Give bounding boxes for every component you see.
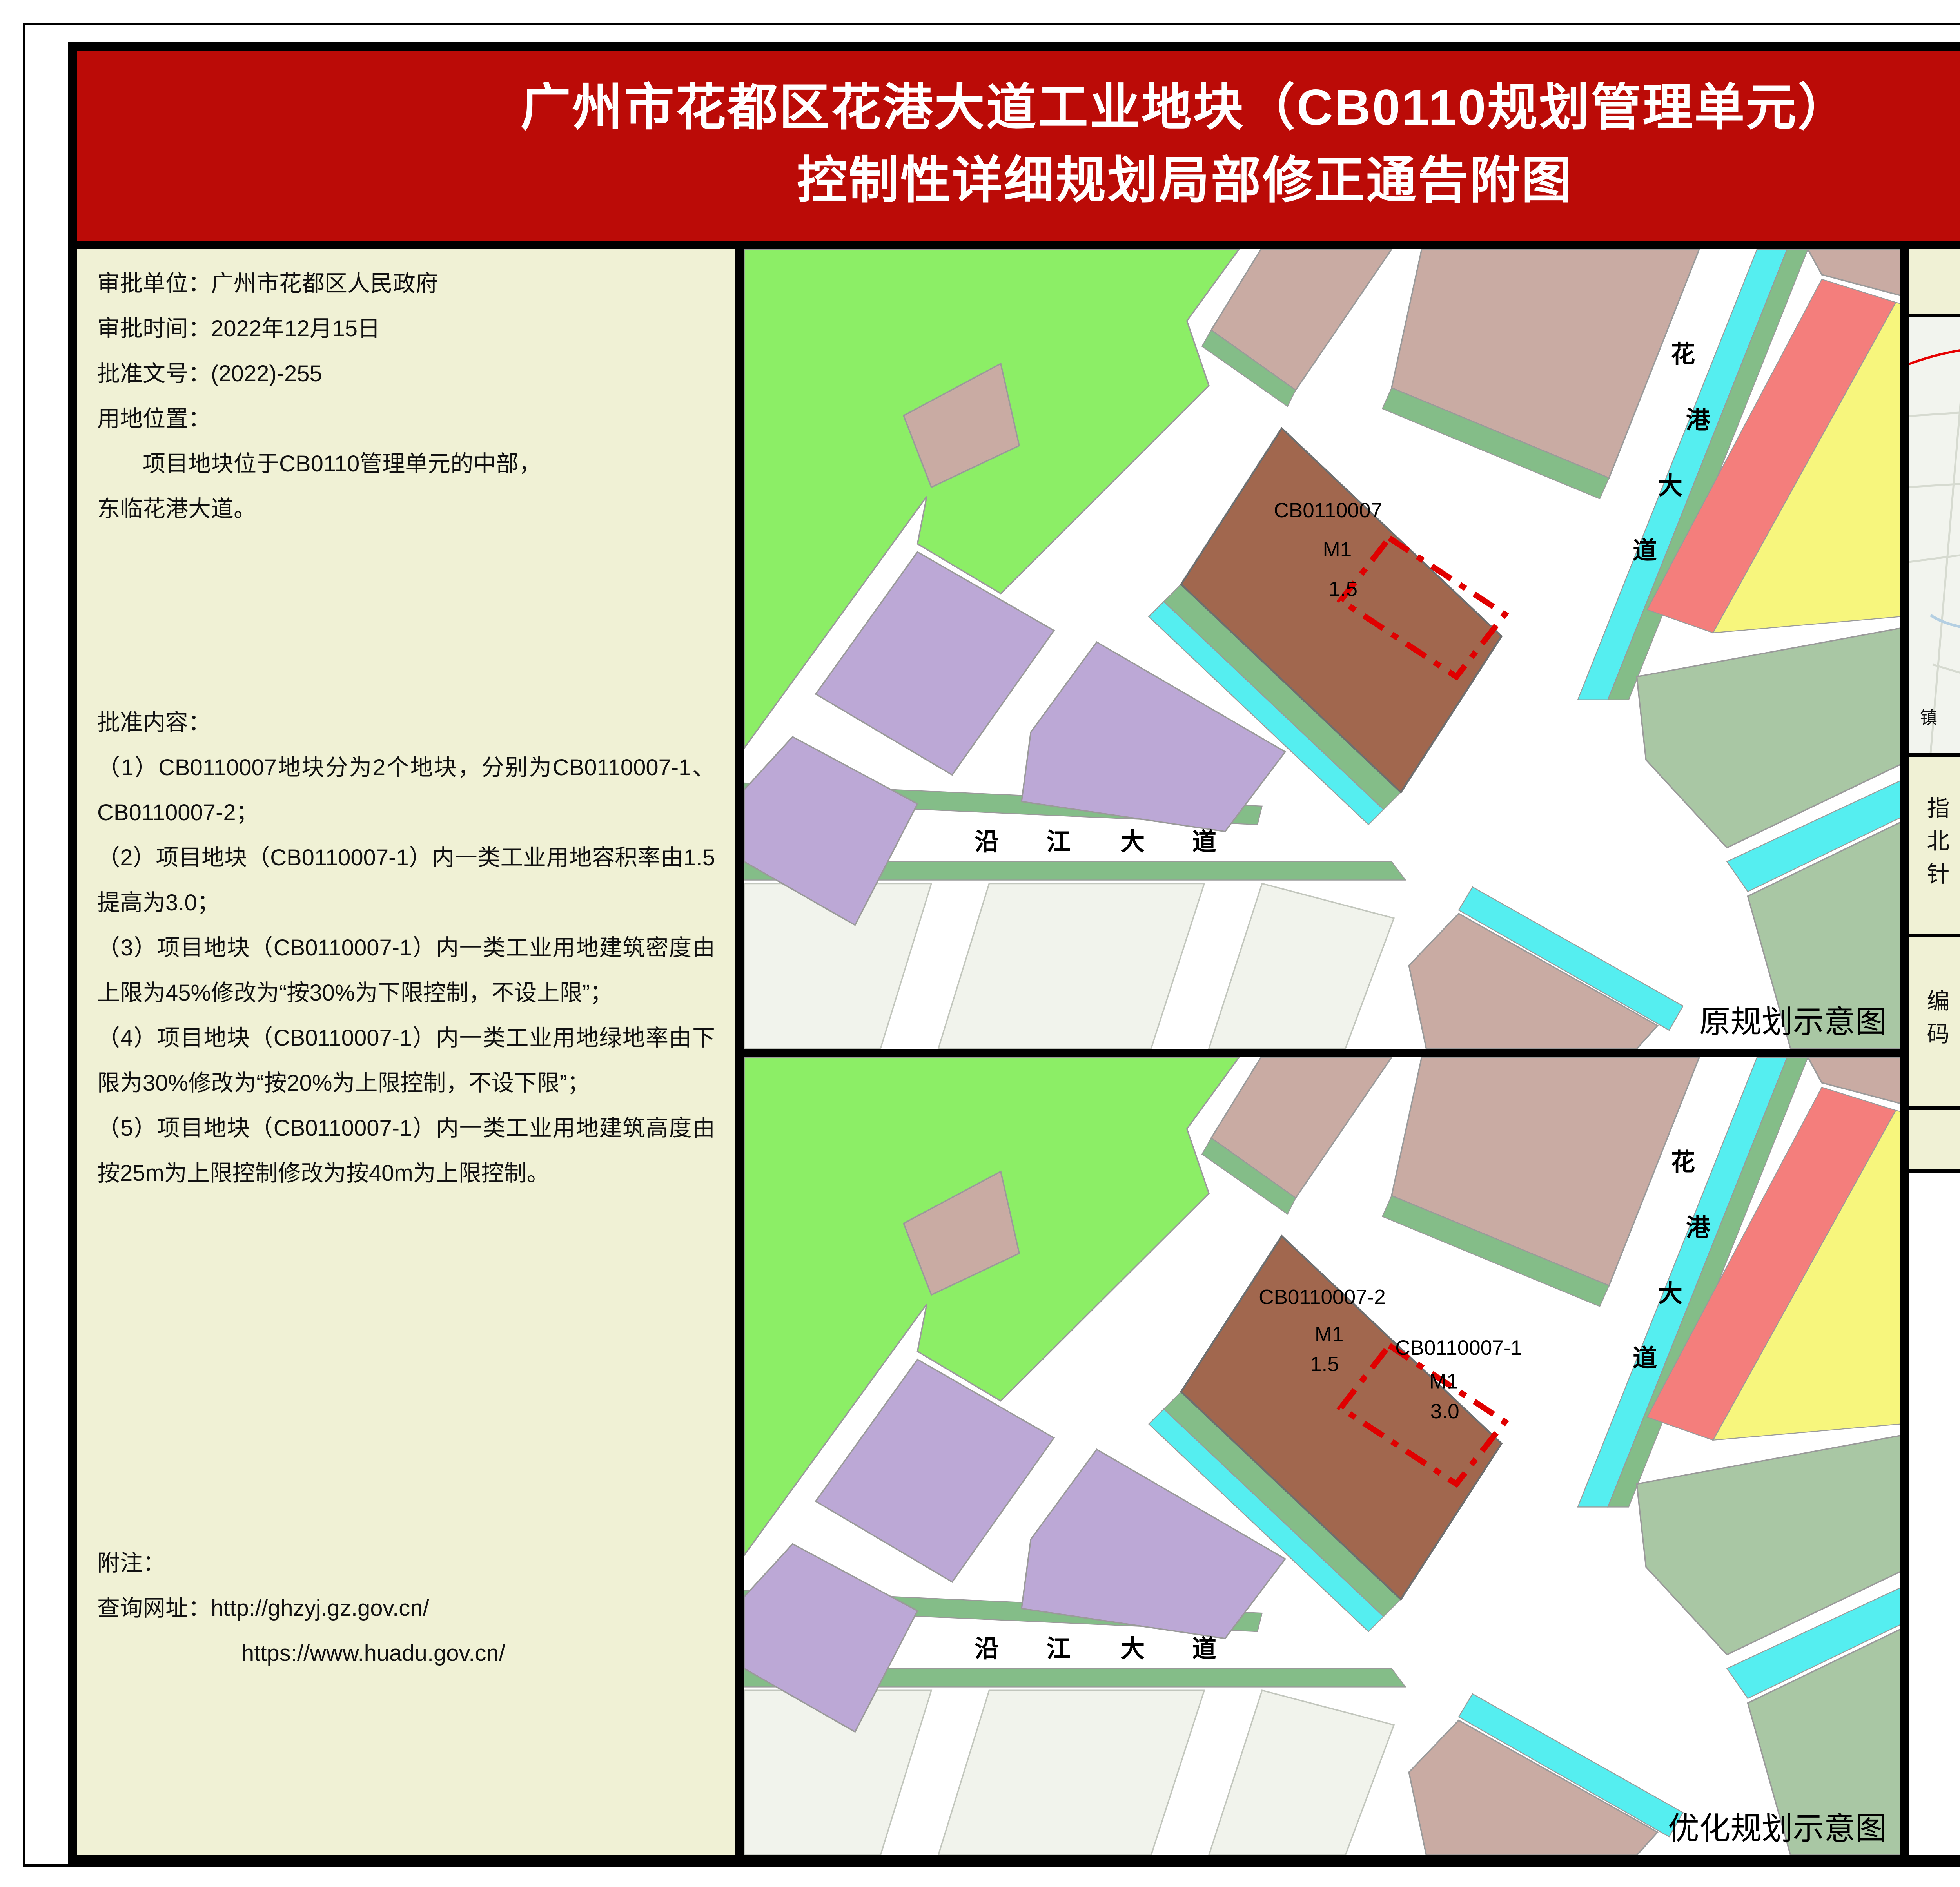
approval-date: 审批时间：2022年12月15日	[97, 306, 715, 351]
yanjiang-char-3: 大	[1120, 828, 1145, 856]
approval-item-2: （2）项目地块（CB0110007-1）内一类工业用地容积率由1.5提高为3.0…	[97, 835, 715, 925]
huagang-char-1: 花	[1671, 341, 1695, 368]
huagang-char-2: 港	[1686, 407, 1711, 434]
optimized-plan-map: CB0110007-2 M1 1.5 CB0110007-1 M1 3.0 花 …	[744, 1057, 1900, 1855]
location-line2: 东临花港大道。	[97, 486, 715, 531]
compass-label-cell: 指北针	[1909, 757, 1960, 934]
location-title: 用地位置：	[97, 396, 715, 441]
huagang-char-2: 港	[1686, 1214, 1711, 1242]
zoning-blocks	[744, 249, 1900, 1049]
huagang-char-4: 道	[1633, 1345, 1657, 1372]
approval-item-1: （1）CB0110007地块分为2个地块，分别为CB0110007-1、CB01…	[97, 745, 715, 835]
plot-far-label: 1.5	[1328, 577, 1357, 600]
yanjiang-char-4: 道	[1192, 1635, 1216, 1662]
approval-doc-no: 批准文号：(2022)-255	[97, 351, 715, 396]
compass-label: 指北针	[1920, 796, 1953, 895]
huagang-char-4: 道	[1633, 537, 1657, 564]
label-zhen: 镇	[1920, 708, 1937, 727]
plot2-use-label: M1	[1315, 1323, 1344, 1346]
location-map: 花城街 花都区政府 新华街 秀全街 广 清 高 速 镇 项目位置	[1909, 317, 1960, 753]
code-label: 编码	[1920, 989, 1953, 1055]
approval-item-4: （4）项目地块（CB0110007-1）内一类工业用地绿地率由下限为30%修改为…	[97, 1015, 715, 1106]
approval-item-3: （3）项目地块（CB0110007-1）内一类工业用地建筑密度由上限为45%修改…	[97, 925, 715, 1015]
location-map-header: 区位图	[1909, 249, 1960, 314]
plot-code-label: CB0110007	[1274, 499, 1382, 522]
legend-header: 图 例	[1909, 1110, 1960, 1169]
note-title: 附注：	[97, 1541, 715, 1586]
yanjiang-char-2: 江	[1046, 828, 1071, 856]
plot2-far-label: 1.5	[1310, 1352, 1339, 1376]
notes-block: 附注： 查询网址：http://ghzyj.gz.gov.cn/ https:/…	[97, 1541, 715, 1676]
plot-use-label: M1	[1323, 538, 1352, 561]
map-caption: 原规划示意图	[1699, 1004, 1887, 1039]
plot2-code-label: CB0110007-2	[1259, 1286, 1386, 1309]
note-url-2: https://www.huadu.gov.cn/	[97, 1631, 715, 1676]
approval-item-5: （5）项目地块（CB0110007-1）内一类工业用地建筑高度由按25m为上限控…	[97, 1106, 715, 1196]
huagang-char-3: 大	[1658, 473, 1682, 500]
sidebar: 区位图	[1909, 249, 1960, 1855]
yanjiang-char-3: 大	[1120, 1635, 1145, 1662]
yanjiang-char-1: 沿	[975, 828, 999, 856]
plot1-use-label: M1	[1429, 1370, 1458, 1393]
zoning-blocks	[744, 1057, 1900, 1855]
map-caption: 优化规划示意图	[1668, 1811, 1886, 1846]
code-row: 编码 CB0110	[1909, 937, 1960, 1106]
huagang-char-3: 大	[1658, 1280, 1682, 1307]
maps-column: CB0110007 M1 1.5 花 港 大 道 沿 江 大 道 原规划示	[744, 51, 1900, 1855]
info-panel: 审批单位：广州市花都区人民政府 审批时间：2022年12月15日 批准文号：(2…	[77, 249, 735, 1855]
note-url-1: 查询网址：http://ghzyj.gz.gov.cn/	[97, 1586, 715, 1631]
plot1-far-label: 3.0	[1430, 1400, 1459, 1423]
location-line1: 项目地块位于CB0110管理单元的中部，	[97, 441, 715, 486]
code-label-cell: 编码	[1909, 937, 1960, 1106]
yanjiang-char-1: 沿	[975, 1635, 999, 1662]
huagang-char-1: 花	[1671, 1149, 1695, 1176]
approval-unit: 审批单位：广州市花都区人民政府	[97, 261, 715, 306]
original-plan-map: CB0110007 M1 1.5 花 港 大 道 沿 江 大 道 原规划示	[744, 249, 1900, 1049]
compass-row: 指北针 N	[1909, 757, 1960, 934]
yanjiang-char-4: 道	[1192, 828, 1216, 856]
yanjiang-char-2: 江	[1046, 1635, 1071, 1662]
content-frame: 广州市花都区花港大道工业地块（CB0110规划管理单元） 控制性详细规划局部修正…	[68, 42, 1960, 1864]
approval-content-title: 批准内容：	[97, 700, 715, 745]
legend-body: 项目地块范围 一类工业用地	[1909, 1173, 1960, 1855]
plot1-code-label: CB0110007-1	[1395, 1336, 1522, 1360]
approval-content: 批准内容： （1）CB0110007地块分为2个地块，分别为CB0110007-…	[97, 700, 715, 1196]
